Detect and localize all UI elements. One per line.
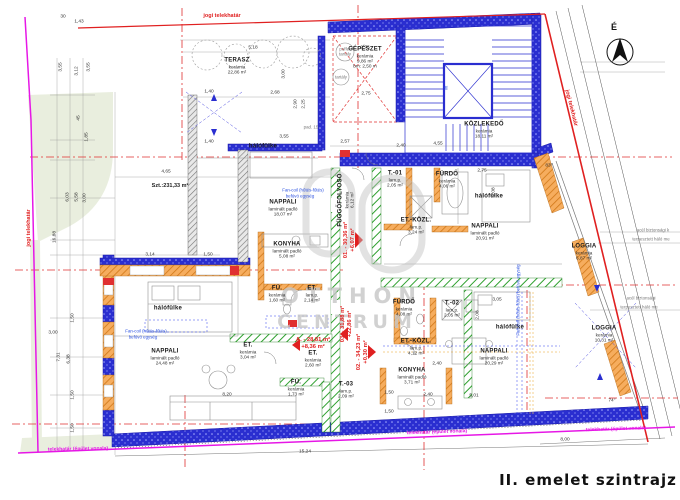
dimension-label: 1,50 <box>70 390 75 399</box>
page-title: II. emelet szintrajz <box>499 471 677 489</box>
apartment-area-label: 03. - 31,88 m²+22,86 m² <box>340 306 354 342</box>
dimension-label: 4,65 <box>161 169 170 174</box>
dimension-label: 2,40 <box>432 361 441 366</box>
dimension-label: 2,68 <box>270 90 279 95</box>
north-label: É <box>611 22 617 32</box>
room-label: TERASZkerámia22,86 m² <box>224 57 249 74</box>
room-label: ET.lam.p.2,14 m² <box>304 285 320 302</box>
room-label: hálófülke <box>496 325 524 332</box>
annotation-label: terpesztett háló me <box>620 306 657 311</box>
room-label: KONYHAlaminált padló5,08 m² <box>273 241 302 258</box>
dimension-label: 2,57 <box>340 139 349 144</box>
dimension-label: 45 <box>76 115 81 120</box>
room-label: NAPPALIlaminált padló18,07 m² <box>269 199 298 216</box>
dimension-label: 2,75 <box>360 45 369 50</box>
room-label: hálófülke <box>249 144 277 151</box>
room-label: LOGGIAkerámia10,31 m² <box>592 325 617 342</box>
annotation-label: Fan-coil (hűtés-fűtés) <box>282 189 323 194</box>
room-label: T.-01lam.p.2,05 m² <box>387 170 403 187</box>
annotation-label: terpesztett háló me <box>632 238 669 243</box>
annotation-label: acél biztonsági k <box>637 229 669 234</box>
dimension-label: 3,00 <box>82 193 87 202</box>
dimension-label: 1,85 <box>84 132 89 141</box>
room-label: ET.-KÖZL.lam.p.3,24 m² <box>401 217 431 234</box>
room-label: NAPPALIlaminált padló20,29 m² <box>480 348 509 365</box>
dimension-label: 3,00 <box>48 330 57 335</box>
room-label: ET.kerámia2,60 m² <box>305 350 322 367</box>
dimension-label: 6,03 <box>65 192 70 201</box>
room-label: KÖZLEKEDŐkerámia18,11 m² <box>464 121 503 138</box>
dimension-label: 2,40 <box>423 392 432 397</box>
dimension-label: 1,50 <box>384 409 393 414</box>
annotation-label: jogi telekhatár <box>26 209 32 246</box>
annotation-label: Fan-coil (hűtés-fűtés) <box>125 330 166 335</box>
dimension-label: 1,40 <box>204 89 213 94</box>
room-label: FÜGGŐFOLYOSÓkerámia6,12 m² <box>337 173 354 226</box>
dimension-label: 2,08 <box>491 187 496 196</box>
dimension-label: 2,25 <box>301 99 306 108</box>
dimension-label: 3,05 <box>492 297 501 302</box>
dimension-label: 1,50 <box>70 423 75 432</box>
dimension-label: 1,40 <box>204 139 213 144</box>
dimension-label: 7,31 <box>56 352 61 361</box>
dimension-label: 16,88 <box>52 231 57 243</box>
room-label: ET.kerámia3,04 m² <box>240 342 257 359</box>
annotation-label: befúvó egység <box>129 336 158 341</box>
dimension-label: 1,50 <box>384 390 393 395</box>
apartment-area-label: 01. - 30,36 m²+6,07 m² <box>343 222 357 258</box>
dimension-label: 15,24 <box>299 449 311 454</box>
dimension-label: 3,55 <box>279 134 288 139</box>
annotation-label: acél biztonsági <box>626 297 655 302</box>
room-label: FÜ.kerámia1,60 m² <box>269 285 286 302</box>
dimension-label: 8,20 <box>222 392 231 397</box>
dimension-label: 3,00 <box>281 69 286 78</box>
room-label: LOGGIAkerámia6,87 m² <box>572 243 597 260</box>
annotation-label: Fan-coil (hűtés-fűtés) befúvó egység <box>517 264 522 335</box>
room-label: T.-03lam.p.2,09 m² <box>338 381 354 398</box>
dimension-label: 4,55 <box>433 141 442 146</box>
dimension-label: 1,43 <box>74 19 83 24</box>
dimension-label: 3,14 <box>145 252 154 257</box>
room-label: hálófülke <box>475 194 503 201</box>
annotation-label: jogi telekhatár <box>203 13 240 19</box>
room-label: NAPPALIlaminált padló20,91 m² <box>471 223 500 240</box>
dimension-label: 83° <box>545 163 552 168</box>
dimension-label: 2,75 <box>361 91 370 96</box>
dimension-label: 2,75 <box>477 168 486 173</box>
dimension-label: 74° <box>608 398 615 403</box>
apartment-area-label: A. - 28,81 m²+8,36 m² <box>296 337 330 351</box>
room-label: FÜRDŐkerámia4,06 m² <box>436 171 458 188</box>
dimension-label: 1,50 <box>203 252 212 257</box>
floor-plan-page: OTTHON CENTRUM TERASZkerámia22,86 m²GÉPÉ… <box>0 0 680 500</box>
dimension-label: 3,12 <box>74 66 79 75</box>
room-label: FÜ.kerámia1,73 m² <box>288 379 305 396</box>
dimension-label: 3,55 <box>86 62 91 71</box>
labels-overlay: TERASZkerámia22,86 m²GÉPÉSZETkerámia9,86… <box>0 0 680 500</box>
room-label: NAPPALIlaminált padló24,48 m² <box>151 348 180 365</box>
room-label: T.-02lam.p.2,05 m² <box>444 300 460 317</box>
dimension-label: 2,40 <box>396 143 405 148</box>
dimension-label: 5,58 <box>74 192 79 201</box>
dimension-label: 3,55 <box>58 62 63 71</box>
annotation-label: telekhatár (épület vonala) <box>407 429 467 437</box>
dimension-label: 30 <box>60 14 65 19</box>
room-label: KONYHAlaminált padló3,71 m² <box>398 367 427 384</box>
annotation-label: befúvó egység <box>286 195 315 200</box>
dimension-label: 2,08 <box>475 310 480 319</box>
dimension-label: 5,18 <box>248 45 257 50</box>
annotation-label: jogi telekhatár <box>564 89 579 127</box>
room-label: ET.-KÖZL.lam.p.4,12 m² <box>401 338 431 355</box>
room-label: GÉPÉSZETkerámia9,86 m²bm: 2,50 m <box>348 47 382 70</box>
annotation-label: pad. 15 <box>304 126 319 131</box>
dimension-label: 6,38 <box>66 354 71 363</box>
dimension-label: 2,90 <box>293 99 298 108</box>
dimension-label: 8,00 <box>560 437 569 442</box>
room-label: hálófülke <box>154 306 182 313</box>
annotation-label: tartály <box>339 53 351 58</box>
annotation-label: puffer <box>339 48 350 53</box>
room-label: FÜRDŐkerámia4,08 m² <box>393 299 415 316</box>
annotation-label: telekhatár (épület vonala) <box>48 447 108 454</box>
annotation-label: telekhatár (épület vonala) <box>586 426 646 434</box>
annotation-label: lift <box>445 86 450 90</box>
dimension-label: 5,01 <box>469 393 478 398</box>
annotation-label: tartály <box>335 76 347 81</box>
dimension-label: 1,50 <box>70 313 75 322</box>
apartment-area-label: 02. - 34,23 m²+0,30 m² <box>356 334 370 370</box>
site-area-label: Szt.:231,33 m² <box>152 183 189 189</box>
